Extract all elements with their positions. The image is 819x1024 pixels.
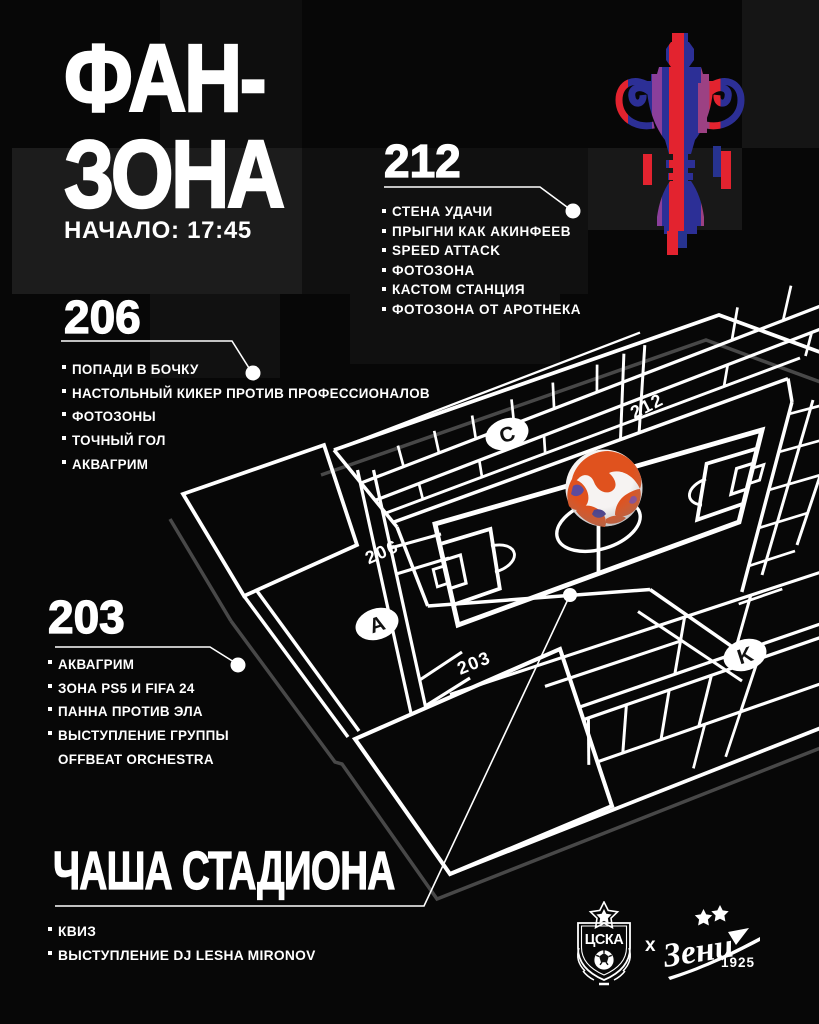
svg-text:ЦСКА: ЦСКА	[585, 932, 624, 948]
svg-text:212: 212	[627, 389, 667, 423]
svg-text:206: 206	[362, 536, 402, 568]
svg-text:1925: 1925	[721, 955, 755, 970]
